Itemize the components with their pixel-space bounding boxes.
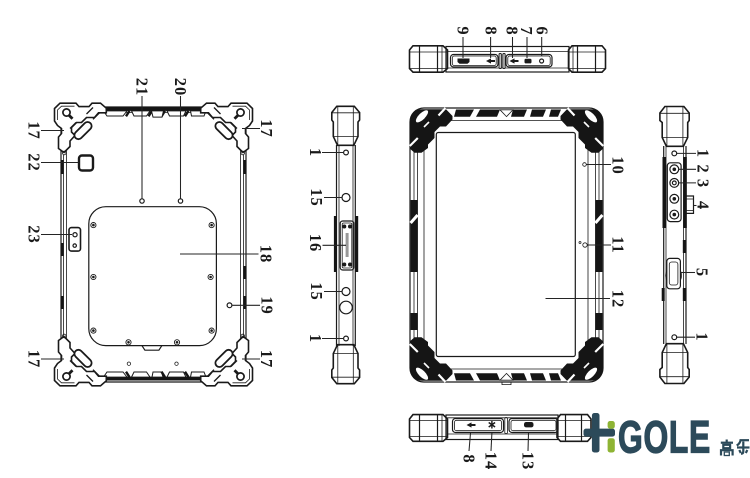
svg-text:1: 1 — [693, 332, 712, 341]
svg-text:21: 21 — [133, 78, 152, 97]
svg-text:17: 17 — [257, 350, 276, 369]
svg-text:9: 9 — [454, 26, 473, 35]
svg-text:12: 12 — [609, 290, 628, 309]
svg-text:10: 10 — [609, 156, 628, 175]
svg-text:17: 17 — [25, 121, 44, 140]
svg-text:5: 5 — [693, 268, 712, 277]
svg-text:3: 3 — [694, 179, 713, 188]
svg-text:1: 1 — [694, 149, 713, 158]
svg-text:19: 19 — [258, 296, 277, 315]
svg-text:1: 1 — [306, 148, 325, 157]
svg-text:17: 17 — [25, 350, 44, 369]
svg-text:8: 8 — [481, 26, 500, 35]
svg-text:17: 17 — [257, 119, 276, 138]
svg-text:23: 23 — [25, 225, 44, 244]
svg-text:2: 2 — [694, 164, 713, 173]
svg-text:15: 15 — [307, 188, 326, 207]
svg-text:16: 16 — [306, 234, 325, 253]
svg-text:22: 22 — [25, 153, 44, 172]
svg-text:11: 11 — [609, 236, 628, 254]
svg-text:8: 8 — [460, 454, 479, 463]
svg-text:14: 14 — [482, 452, 501, 471]
svg-text:6: 6 — [532, 26, 551, 35]
svg-text:15: 15 — [307, 282, 326, 301]
svg-text:13: 13 — [519, 452, 538, 471]
svg-text:20: 20 — [171, 78, 190, 97]
svg-text:GOLE: GOLE — [618, 412, 711, 463]
svg-text:18: 18 — [257, 245, 276, 264]
svg-text:4: 4 — [694, 201, 713, 210]
svg-text:1: 1 — [306, 334, 325, 343]
